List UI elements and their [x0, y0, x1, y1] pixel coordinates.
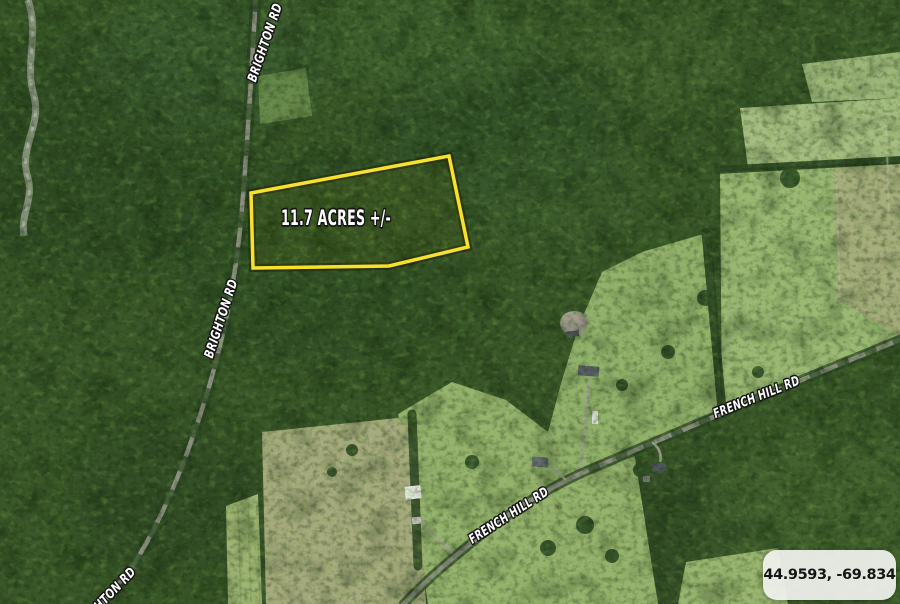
coordinates-text: 44.9593, -69.834 — [763, 567, 895, 583]
canopy-texture — [0, 0, 900, 604]
coordinates-badge: 44.9593, -69.834 — [763, 550, 896, 600]
parcel-acreage-label: 11.7 ACRES +/- — [281, 206, 391, 230]
satellite-map-view[interactable]: BRIGHTON RD BRIGHTON RD BRIGHTON RD FREN… — [0, 0, 900, 604]
aerial-imagery: BRIGHTON RD BRIGHTON RD BRIGHTON RD FREN… — [0, 0, 900, 604]
